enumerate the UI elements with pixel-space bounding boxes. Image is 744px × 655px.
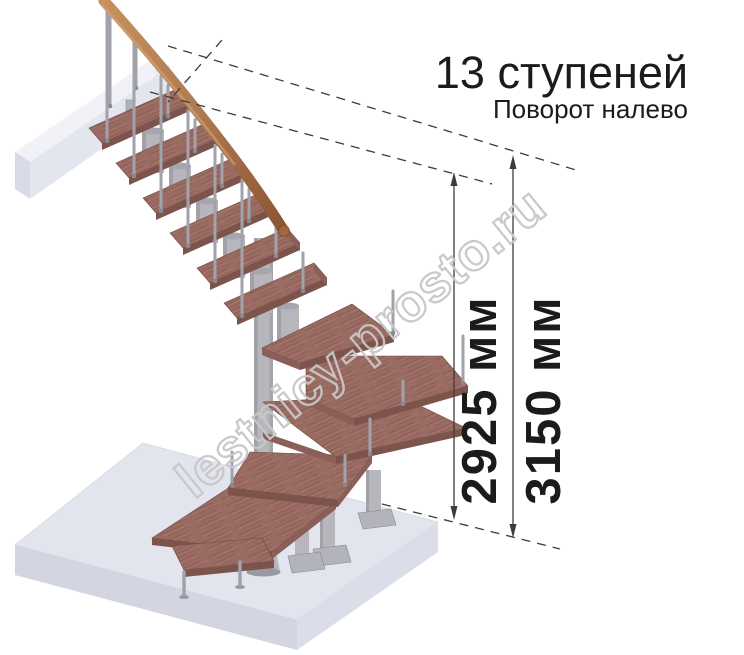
baluster-joint xyxy=(105,139,110,144)
turn-direction-subtitle: Поворот налево xyxy=(493,94,688,124)
winder-post-joint xyxy=(401,402,406,407)
dimension-label-3150: 3150 мм xyxy=(517,295,571,504)
staircase-diagram: lestnicy-prosto.ru 2925 мм 3150 мм 13 ст… xyxy=(0,0,744,655)
baluster-joint xyxy=(301,289,306,294)
baluster-joint xyxy=(132,174,137,179)
steps-count-title: 13 ступеней xyxy=(435,47,688,98)
handrail-end-cap xyxy=(279,226,290,237)
winder-post-joint xyxy=(368,452,373,457)
baluster-joint xyxy=(166,114,171,119)
dimension-label-2925: 2925 мм xyxy=(453,295,507,504)
baluster-joint xyxy=(159,209,164,214)
baluster-joint xyxy=(220,184,225,189)
staircase-diagram-canvas: lestnicy-prosto.ru 2925 мм 3150 мм 13 ст… xyxy=(0,0,744,655)
baluster-joint xyxy=(240,314,245,319)
baluster-joint xyxy=(186,244,191,249)
baluster-joint xyxy=(193,149,198,154)
baluster-joint xyxy=(213,279,218,284)
baluster-joint xyxy=(247,219,252,224)
baluster-joint xyxy=(274,254,279,259)
winder-post-joint xyxy=(343,483,348,488)
